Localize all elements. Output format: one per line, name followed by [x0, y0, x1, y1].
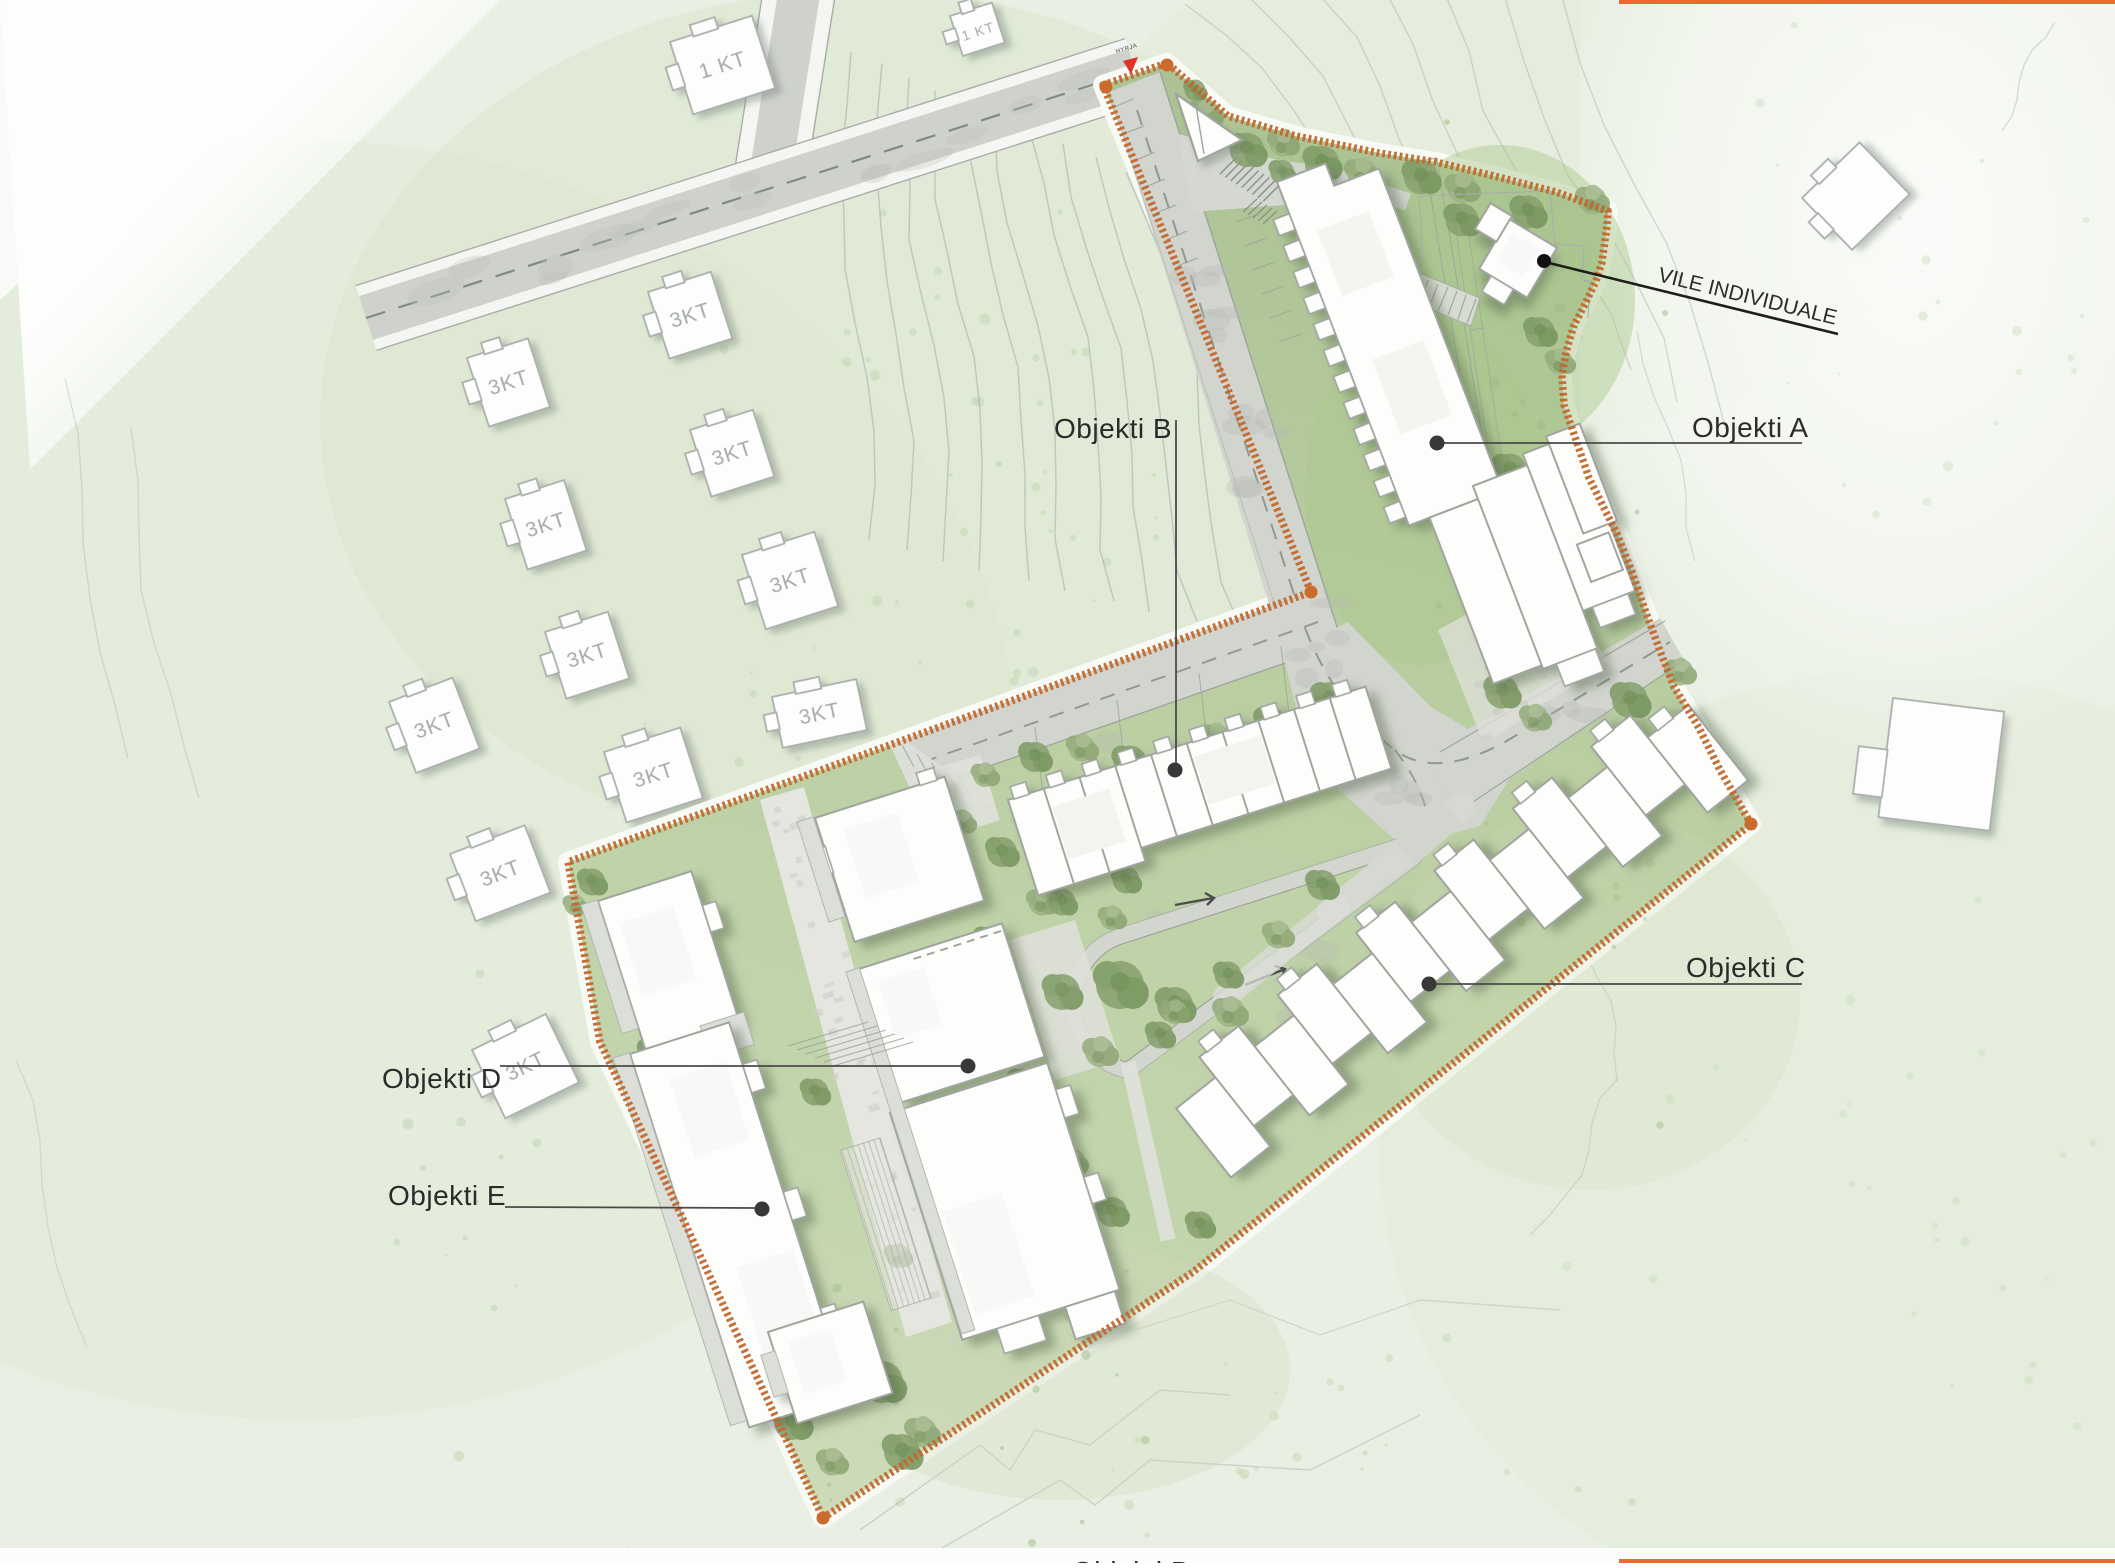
svg-text:Objekti E: Objekti E [388, 1180, 506, 1211]
svg-text:Objekti B: Objekti B [1054, 413, 1172, 444]
svg-text:Objekti A: Objekti A [1692, 412, 1809, 443]
svg-text:Objekti D: Objekti D [382, 1063, 502, 1094]
svg-text:Objekti C: Objekti C [1686, 952, 1806, 983]
svg-text:Objekti B: Objekti B [1072, 1556, 1190, 1563]
